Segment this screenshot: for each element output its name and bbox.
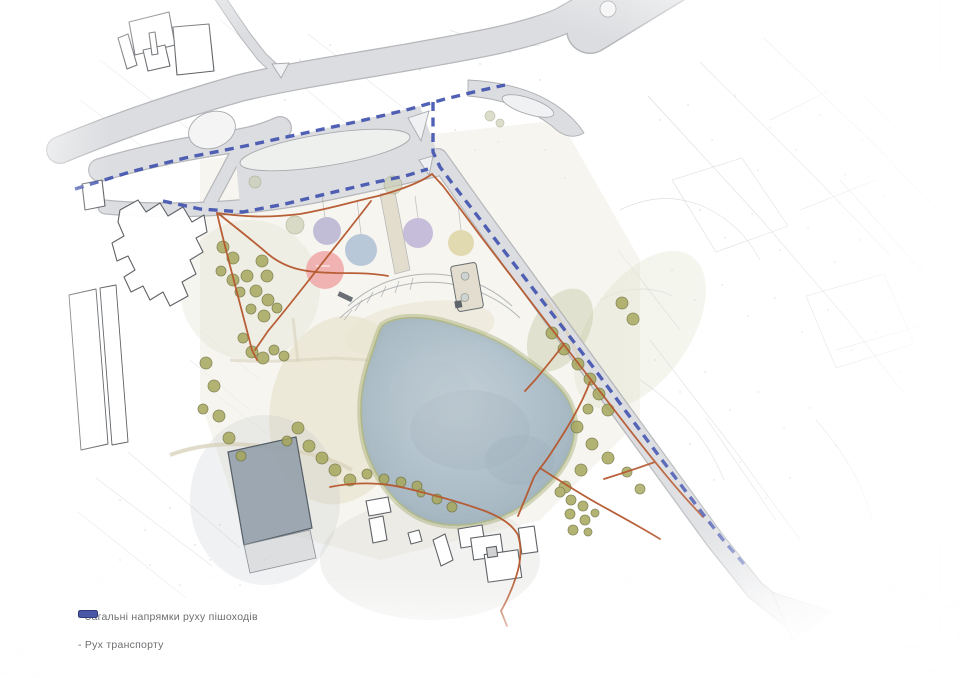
legend-item-pedestrian: - Загальні напрямки руху пішоходів bbox=[78, 610, 258, 624]
legend-label-transport: - Рух транспорту bbox=[78, 639, 164, 651]
transport-route-swatch-icon bbox=[78, 610, 98, 618]
vignette-overlay bbox=[0, 0, 960, 678]
legend: - Загальні напрямки руху пішоходів - Рух… bbox=[78, 610, 258, 666]
site-plan-page: - Загальні напрямки руху пішоходів - Рух… bbox=[0, 0, 960, 678]
legend-item-transport: - Рух транспорту bbox=[78, 638, 258, 652]
site-plan-svg bbox=[0, 0, 960, 678]
legend-label-pedestrian: - Загальні напрямки руху пішоходів bbox=[78, 611, 258, 623]
